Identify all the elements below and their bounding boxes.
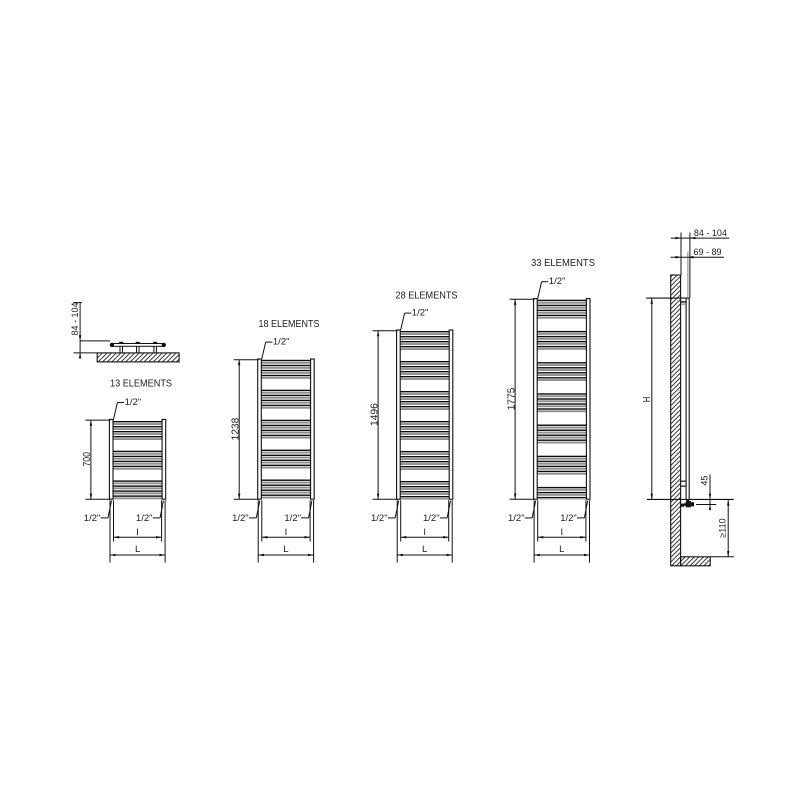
svg-text:69 - 89: 69 - 89 [694,247,722,257]
svg-text:I: I [423,527,426,538]
svg-text:I: I [136,527,139,538]
svg-text:18 ELEMENTS: 18 ELEMENTS [259,319,320,330]
svg-text:1/2": 1/2" [412,308,429,319]
svg-text:I: I [285,527,288,538]
svg-text:1/2": 1/2" [371,513,388,524]
svg-text:1/2": 1/2" [560,513,577,524]
svg-text:84 - 104: 84 - 104 [694,228,727,238]
svg-text:1/2": 1/2" [284,513,301,524]
svg-text:L: L [422,544,427,555]
svg-text:1/2": 1/2" [273,337,290,348]
svg-text:13 ELEMENTS: 13 ELEMENTS [110,379,172,390]
svg-text:1/2": 1/2" [508,513,525,524]
svg-text:1/2": 1/2" [136,513,153,524]
svg-text:1/2": 1/2" [423,513,440,524]
svg-text:1496: 1496 [368,403,380,426]
svg-text:45: 45 [700,476,710,486]
svg-text:700: 700 [81,452,93,467]
svg-text:33 ELEMENTS: 33 ELEMENTS [531,258,595,269]
svg-text:1775: 1775 [505,387,517,410]
svg-text:L: L [135,544,140,555]
svg-text:1/2": 1/2" [232,513,249,524]
svg-text:L: L [283,544,288,555]
svg-text:L: L [559,544,564,555]
svg-text:1/2": 1/2" [84,513,101,524]
svg-text:1/2": 1/2" [549,276,566,287]
svg-text:H: H [642,397,653,403]
svg-text:≥110: ≥110 [718,518,728,537]
svg-text:I: I [560,527,563,538]
svg-text:28 ELEMENTS: 28 ELEMENTS [396,291,458,302]
svg-text:1238: 1238 [229,418,241,441]
svg-text:84 - 104: 84 - 104 [70,302,80,335]
svg-text:1/2": 1/2" [125,397,142,408]
